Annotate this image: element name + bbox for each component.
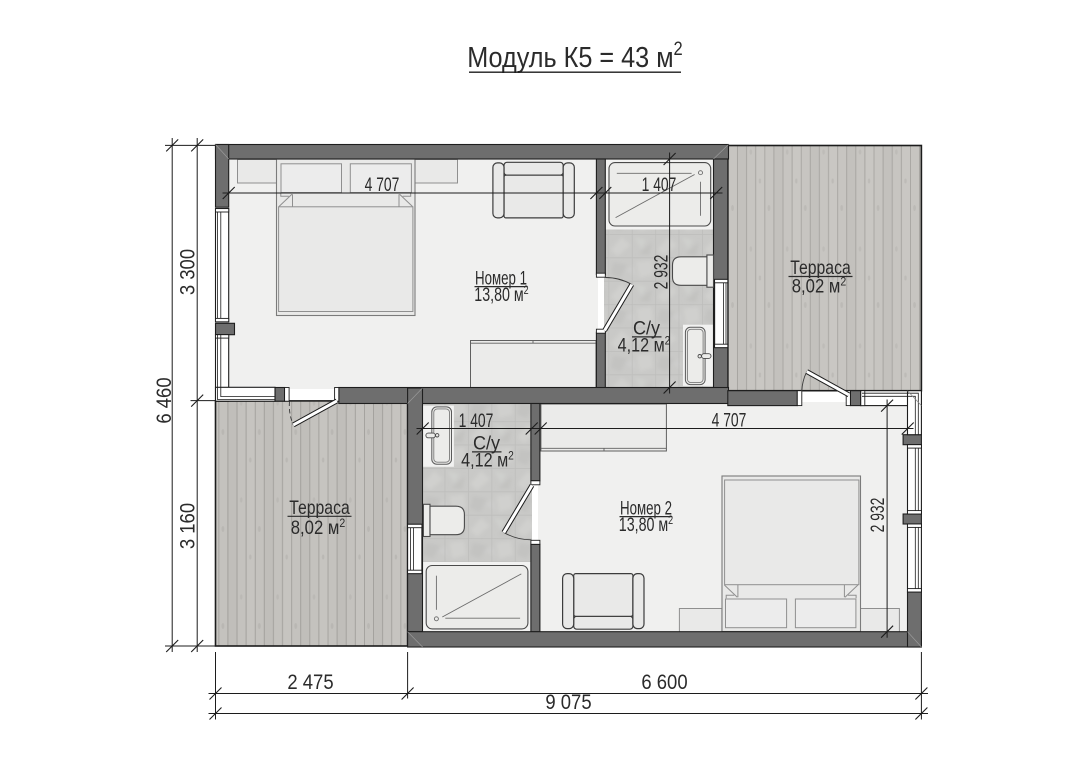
svg-text:3 300: 3 300 — [176, 249, 199, 295]
svg-text:6 460: 6 460 — [153, 377, 176, 423]
svg-text:9 075: 9 075 — [545, 691, 591, 714]
svg-text:2 932: 2 932 — [650, 255, 672, 290]
svg-text:13,80 м2: 13,80 м2 — [474, 284, 528, 306]
svg-text:4,12 м2: 4,12 м2 — [461, 449, 514, 471]
svg-text:1 407: 1 407 — [642, 174, 677, 196]
svg-text:8,02 м2: 8,02 м2 — [291, 517, 346, 538]
svg-text:2 475: 2 475 — [287, 671, 333, 694]
svg-text:4,12 м2: 4,12 м2 — [618, 334, 671, 356]
svg-text:2 932: 2 932 — [867, 498, 889, 533]
svg-text:Терраса: Терраса — [289, 496, 350, 518]
svg-text:1 407: 1 407 — [459, 410, 494, 432]
svg-text:6 600: 6 600 — [641, 671, 687, 694]
svg-text:13,80 м2: 13,80 м2 — [619, 514, 673, 536]
svg-text:8,02 м2: 8,02 м2 — [792, 276, 847, 297]
svg-text:4 707: 4 707 — [712, 409, 747, 431]
svg-text:3 160: 3 160 — [176, 503, 199, 549]
svg-text:4 707: 4 707 — [365, 174, 400, 196]
svg-text:Модуль К5 = 43 м2: Модуль К5 = 43 м2 — [467, 38, 682, 73]
